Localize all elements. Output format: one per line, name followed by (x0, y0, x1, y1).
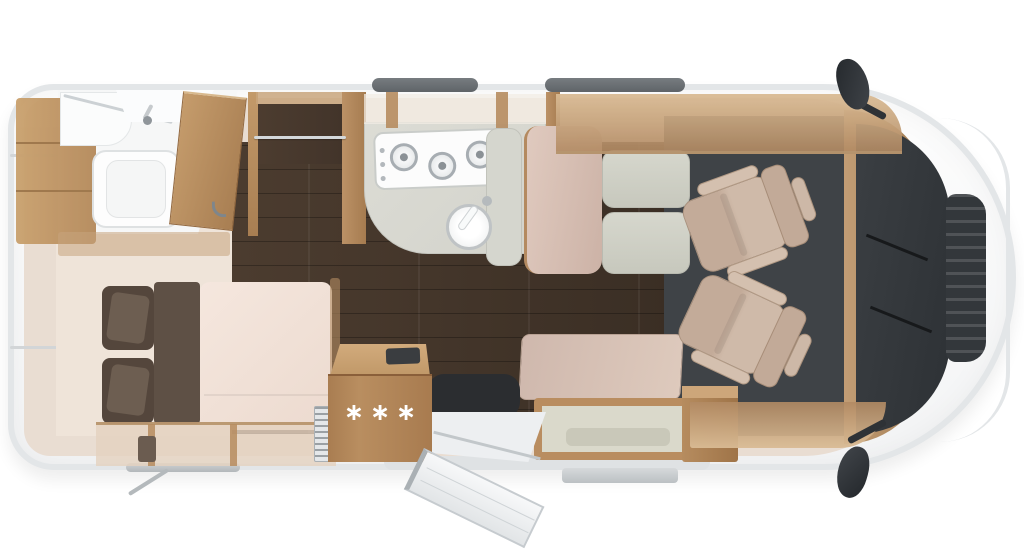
storage-divider (230, 424, 237, 466)
cabinet-top-face (682, 386, 738, 398)
door-handle-icon (212, 201, 227, 217)
door-panel-line (426, 467, 534, 521)
sideboard-inset (566, 428, 670, 446)
pillow-fold (106, 364, 150, 417)
shelf-divider (16, 190, 96, 192)
side-bench-backrest (518, 334, 683, 400)
wardrobe-wall (248, 92, 258, 236)
hob-burner (428, 151, 457, 180)
entry-step (562, 468, 678, 483)
bed-pillow (102, 286, 154, 350)
overhead-cabinet-divider (496, 92, 508, 128)
cab-entry-trim (690, 402, 886, 448)
mattress-seam (204, 394, 328, 396)
toilet-lid (106, 160, 166, 218)
wardrobe-floor (252, 104, 344, 164)
kitchen-end-panel (486, 128, 522, 266)
hob-burner (389, 143, 418, 172)
side-window (372, 78, 478, 92)
underbed-storage (96, 422, 336, 466)
hob-knob (381, 176, 386, 181)
bathroom-cabinet-front (58, 232, 230, 256)
washbasin-faucet-base (143, 116, 152, 125)
rear-wall-seam (10, 346, 58, 349)
bed-runner (154, 282, 200, 424)
freezer-stars-icon: ∗∗∗ (330, 394, 430, 430)
overhead-cabinet-divider (386, 92, 398, 128)
door-panel-line (420, 480, 528, 534)
awning-crank-handle (128, 468, 169, 496)
storage-box (138, 436, 156, 462)
bed-mattress (200, 282, 332, 430)
wardrobe-hanging-rail (254, 136, 346, 139)
wardrobe-back-panel (256, 92, 344, 104)
toilet (92, 150, 180, 228)
kitchen-partition-wall (342, 92, 366, 244)
dinette-bench-cushion (602, 212, 690, 274)
motorhome-floorplan: ∗∗∗ (0, 0, 1024, 559)
hob-knob (380, 162, 385, 167)
pillow-fold (106, 292, 150, 345)
kitchen-faucet-base (482, 196, 492, 206)
bed-pillow (102, 358, 154, 424)
side-window (545, 78, 685, 92)
dinette-sideboard (534, 398, 692, 460)
hob-knob (380, 148, 385, 153)
fridge-vent-hatch (386, 347, 421, 364)
windshield (856, 124, 950, 434)
front-grille (946, 194, 986, 362)
entry-mat (428, 374, 520, 418)
